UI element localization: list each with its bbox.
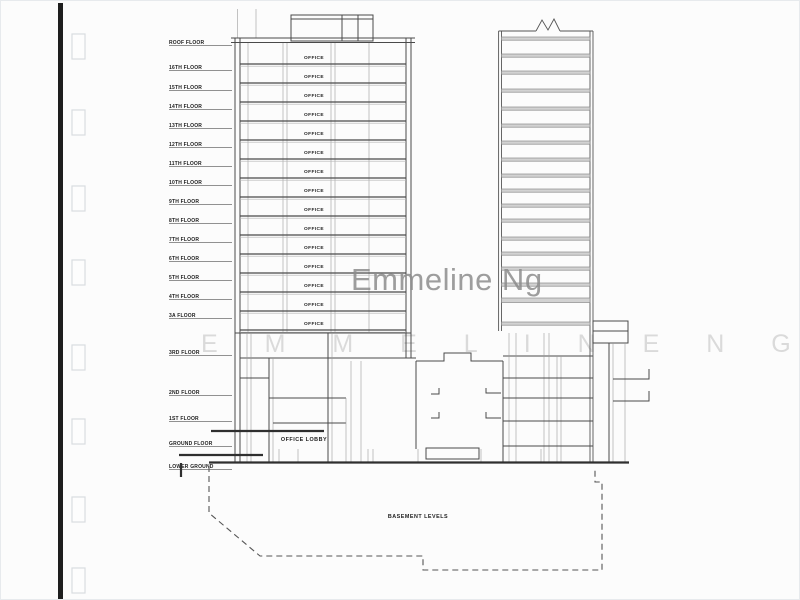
slab-band <box>502 71 591 74</box>
floor-label: 7TH FLOOR <box>169 237 199 243</box>
punch-hole <box>72 345 85 370</box>
slab-band <box>502 54 591 57</box>
punch-hole <box>72 260 85 285</box>
slab-band <box>502 322 591 325</box>
slab-band <box>502 89 591 92</box>
floor-label: 1ST FLOOR <box>169 416 199 422</box>
floor-label: 2ND FLOOR <box>169 390 200 396</box>
slab-band <box>502 37 591 40</box>
office-floor-labels: OFFICEOFFICEOFFICEOFFICEOFFICEOFFICEOFFI… <box>304 55 324 327</box>
slab-band <box>502 298 591 303</box>
punch-hole <box>72 497 85 522</box>
office-label: OFFICE <box>304 188 324 194</box>
punch-hole <box>72 34 85 59</box>
office-label: OFFICE <box>304 169 324 175</box>
office-label: OFFICE <box>304 226 324 232</box>
slab-band <box>502 189 591 192</box>
floor-label: 16TH FLOOR <box>169 65 202 71</box>
floor-label: 4TH FLOOR <box>169 294 199 300</box>
office-label: OFFICE <box>304 112 324 118</box>
punch-hole <box>72 568 85 593</box>
punch-hole <box>72 419 85 444</box>
lobby-label: OFFICE LOBBY <box>281 437 327 443</box>
office-label: OFFICE <box>304 283 324 289</box>
office-label: OFFICE <box>304 264 324 270</box>
slab-band <box>502 141 591 144</box>
scan-edge-bar <box>58 3 63 600</box>
office-label: OFFICE <box>304 321 324 327</box>
scanned-drawing-page: E M M E L I N E N G ROOF FLOOR16TH FLOOR… <box>0 0 800 600</box>
office-label: OFFICE <box>304 93 324 99</box>
watermark-primary: Emmeline Ng <box>351 262 543 297</box>
left-tower: OFFICEOFFICEOFFICEOFFICEOFFICEOFFICEOFFI… <box>231 9 415 463</box>
office-label: OFFICE <box>304 207 324 213</box>
floor-label: 8TH FLOOR <box>169 218 199 224</box>
floor-label: 14TH FLOOR <box>169 104 202 110</box>
slab-band <box>502 124 591 127</box>
basement-outline: BASEMENT LEVELS <box>209 466 602 570</box>
punch-hole-column <box>72 34 85 593</box>
punch-hole <box>72 110 85 135</box>
floor-label: 3RD FLOOR <box>169 350 200 356</box>
slab-band <box>502 204 591 207</box>
slab-band <box>502 219 591 222</box>
floor-label: 15TH FLOOR <box>169 85 202 91</box>
building-section-drawing: E M M E L I N E N G ROOF FLOOR16TH FLOOR… <box>1 1 800 600</box>
slab-band <box>502 107 591 110</box>
floor-label: 11TH FLOOR <box>169 161 202 167</box>
office-label: OFFICE <box>304 55 324 61</box>
slab-band <box>502 252 591 255</box>
floor-label: 5TH FLOOR <box>169 275 199 281</box>
floor-label: 10TH FLOOR <box>169 180 202 186</box>
floor-label: LOWER GROUND <box>169 464 214 470</box>
floor-label: 6TH FLOOR <box>169 256 199 262</box>
floor-label: GROUND FLOOR <box>169 441 213 447</box>
office-label: OFFICE <box>304 74 324 80</box>
basement-label: BASEMENT LEVELS <box>388 514 448 520</box>
slab-band <box>502 174 591 177</box>
slab-band <box>502 237 591 240</box>
slab-band <box>502 158 591 161</box>
floor-label: 12TH FLOOR <box>169 142 202 148</box>
floor-label: ROOF FLOOR <box>169 40 205 46</box>
floor-label: 3A FLOOR <box>169 313 196 319</box>
break-line-symbol <box>536 19 560 31</box>
office-label: OFFICE <box>304 302 324 308</box>
watermark-secondary: E M M E L I N E N G <box>201 330 800 358</box>
office-label: OFFICE <box>304 245 324 251</box>
floor-label: 13TH FLOOR <box>169 123 202 129</box>
office-label: OFFICE <box>304 131 324 137</box>
floor-label-column: ROOF FLOOR16TH FLOOR15TH FLOOR14TH FLOOR… <box>169 40 232 470</box>
office-label: OFFICE <box>304 150 324 156</box>
punch-hole <box>72 186 85 211</box>
floor-label: 9TH FLOOR <box>169 199 199 205</box>
